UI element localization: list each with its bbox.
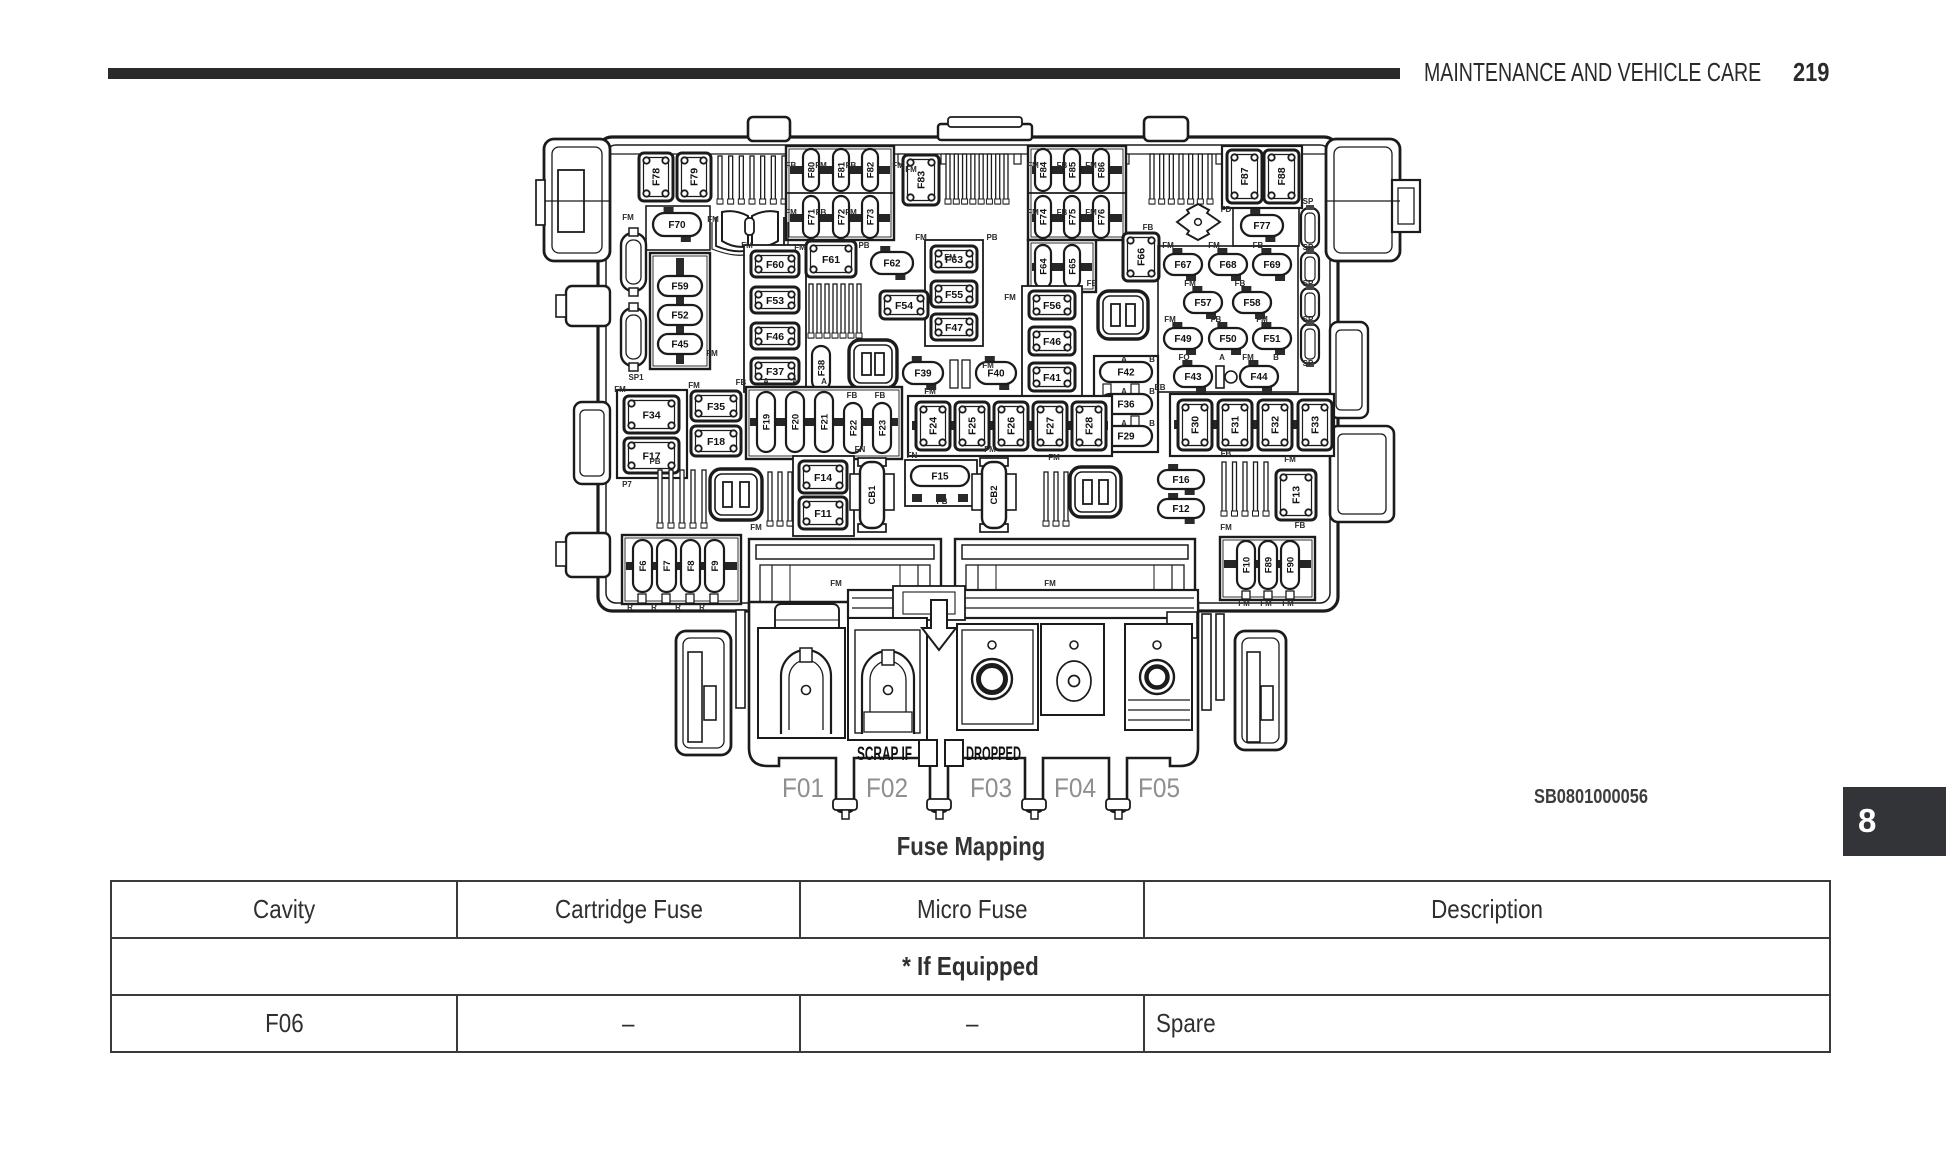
svg-text:F11: F11: [814, 508, 832, 520]
svg-text:F27: F27: [1045, 417, 1057, 435]
svg-text:F55: F55: [945, 289, 963, 301]
svg-text:F51: F51: [1263, 334, 1281, 345]
svg-text:F6: F6: [638, 560, 649, 571]
svg-text:FM: FM: [1048, 453, 1060, 462]
svg-text:F16: F16: [1172, 475, 1190, 486]
svg-text:FB: FB: [846, 161, 857, 170]
svg-text:F87: F87: [1239, 167, 1251, 185]
svg-text:R: R: [699, 603, 705, 612]
svg-text:F26: F26: [1006, 417, 1018, 435]
svg-text:F50: F50: [1219, 334, 1237, 345]
svg-text:PB: PB: [858, 241, 869, 250]
svg-text:F30: F30: [1190, 416, 1202, 434]
svg-text:FB: FB: [1221, 449, 1232, 458]
svg-text:F82: F82: [865, 162, 876, 178]
svg-text:FB: FB: [816, 208, 827, 217]
svg-text:R: R: [627, 603, 633, 612]
svg-text:F60: F60: [766, 259, 784, 271]
svg-text:F54: F54: [895, 300, 913, 312]
svg-text:FM: FM: [1044, 579, 1056, 588]
svg-text:F29: F29: [1117, 432, 1135, 443]
svg-text:FB: FB: [1295, 521, 1306, 530]
svg-text:FB: FB: [736, 378, 747, 387]
svg-text:FM: FM: [1004, 293, 1016, 302]
svg-text:FM: FM: [915, 233, 927, 242]
svg-text:F7: F7: [662, 560, 673, 571]
svg-text:FN: FN: [907, 451, 918, 460]
svg-text:F49: F49: [1174, 334, 1192, 345]
svg-text:F86: F86: [1096, 162, 1107, 178]
svg-text:FM: FM: [1085, 208, 1097, 217]
svg-text:FB: FB: [1057, 161, 1068, 170]
svg-text:F75: F75: [1067, 208, 1078, 225]
svg-text:F83: F83: [916, 171, 928, 189]
svg-text:FM: FM: [1027, 208, 1039, 217]
svg-text:F61: F61: [822, 254, 840, 266]
svg-text:FM: FM: [1220, 523, 1232, 532]
svg-text:F56: F56: [1043, 300, 1061, 312]
svg-text:F64: F64: [1038, 258, 1049, 275]
svg-text:F13: F13: [1291, 486, 1303, 504]
svg-text:F70: F70: [668, 220, 686, 231]
svg-text:F59: F59: [671, 282, 689, 293]
svg-text:F22: F22: [848, 420, 859, 436]
svg-text:FM: FM: [905, 165, 917, 174]
svg-text:FB: FB: [1057, 208, 1068, 217]
svg-text:F39: F39: [914, 369, 932, 380]
svg-text:FM: FM: [794, 243, 806, 252]
svg-text:F65: F65: [1067, 258, 1078, 275]
svg-text:FM: FM: [1284, 455, 1296, 464]
svg-text:F03: F03: [970, 773, 1012, 803]
svg-text:FB: FB: [1211, 315, 1222, 324]
svg-text:SP: SP: [1303, 315, 1314, 324]
svg-text:FN: FN: [855, 445, 866, 454]
svg-text:FM: FM: [750, 523, 762, 532]
svg-text:F31: F31: [1230, 416, 1242, 434]
svg-text:PB: PB: [936, 497, 947, 506]
svg-text:CB2: CB2: [989, 485, 1000, 504]
svg-text:F45: F45: [671, 340, 689, 351]
svg-text:FB: FB: [875, 391, 886, 400]
svg-text:FM: FM: [785, 208, 797, 217]
svg-text:F58: F58: [1243, 298, 1261, 309]
svg-text:F66: F66: [1136, 248, 1148, 266]
svg-text:F25: F25: [967, 417, 979, 435]
svg-text:FM: FM: [1242, 353, 1254, 362]
svg-text:SP: SP: [1303, 243, 1314, 252]
svg-text:FB: FB: [1143, 223, 1154, 232]
svg-text:F23: F23: [877, 420, 888, 436]
svg-text:R: R: [651, 603, 657, 612]
svg-text:F15: F15: [931, 472, 949, 483]
svg-text:F78: F78: [651, 168, 663, 186]
svg-text:F34: F34: [642, 409, 660, 421]
svg-text:F37: F37: [766, 366, 784, 378]
svg-text:FB: FB: [1235, 279, 1246, 288]
svg-text:F76: F76: [1096, 209, 1107, 225]
svg-text:F05: F05: [1138, 773, 1180, 803]
svg-text:FM: FM: [1282, 599, 1294, 608]
svg-text:F20: F20: [790, 414, 801, 430]
svg-text:FM: FM: [982, 361, 994, 370]
svg-text:FM: FM: [815, 161, 827, 170]
svg-text:B: B: [1149, 355, 1155, 364]
svg-text:FM: FM: [892, 161, 904, 170]
svg-text:F85: F85: [1067, 161, 1078, 178]
svg-text:F67: F67: [1174, 260, 1192, 271]
svg-text:FM: FM: [741, 241, 753, 250]
svg-text:FM: FM: [614, 385, 626, 394]
svg-text:F02: F02: [866, 773, 908, 803]
svg-text:A: A: [792, 377, 798, 386]
svg-text:F84: F84: [1038, 161, 1049, 178]
svg-text:B: B: [1149, 419, 1155, 428]
svg-text:B: B: [1149, 387, 1155, 396]
svg-text:F40: F40: [987, 369, 1005, 380]
svg-text:F90: F90: [1285, 557, 1296, 573]
svg-text:F04: F04: [1054, 773, 1096, 803]
svg-text:A: A: [1121, 355, 1127, 364]
svg-text:FM: FM: [706, 349, 718, 358]
svg-text:F73: F73: [865, 209, 876, 225]
svg-text:FM: FM: [707, 215, 719, 224]
svg-text:F57: F57: [1194, 298, 1212, 309]
svg-text:FM: FM: [1238, 599, 1250, 608]
svg-text:FM: FM: [1162, 241, 1174, 250]
svg-text:FB: FB: [1253, 241, 1264, 250]
svg-text:F14: F14: [814, 472, 832, 484]
svg-text:FQ: FQ: [1178, 353, 1189, 362]
svg-text:F36: F36: [1117, 400, 1135, 411]
svg-text:F01: F01: [782, 773, 824, 803]
svg-text:A: A: [821, 377, 827, 386]
svg-text:DROPPED: DROPPED: [966, 744, 1021, 765]
svg-text:B: B: [1273, 353, 1279, 362]
svg-text:F46: F46: [1043, 336, 1061, 348]
svg-text:F52: F52: [671, 311, 689, 322]
svg-text:F53: F53: [766, 295, 784, 307]
svg-text:FM: FM: [1164, 315, 1176, 324]
svg-text:FM: FM: [1027, 161, 1039, 170]
svg-text:SP1: SP1: [628, 373, 644, 382]
svg-text:FM: FM: [830, 579, 842, 588]
svg-text:F19: F19: [761, 414, 772, 430]
svg-text:FM: FM: [1184, 279, 1196, 288]
svg-text:F68: F68: [1219, 260, 1237, 271]
svg-text:F62: F62: [883, 259, 901, 270]
svg-text:FB: FB: [1087, 279, 1098, 288]
svg-text:FD: FD: [1221, 205, 1232, 214]
svg-text:A: A: [1121, 387, 1127, 396]
svg-text:FM: FM: [688, 381, 700, 390]
svg-text:SP: SP: [1303, 197, 1314, 206]
svg-text:FB: FB: [847, 391, 858, 400]
svg-text:F28: F28: [1084, 417, 1096, 435]
svg-text:F69: F69: [1263, 260, 1281, 271]
svg-text:A: A: [1121, 419, 1127, 428]
svg-text:F24: F24: [928, 417, 940, 435]
svg-text:F9: F9: [710, 560, 721, 571]
svg-text:F32: F32: [1270, 416, 1282, 434]
svg-text:PB: PB: [986, 233, 997, 242]
svg-text:P7: P7: [622, 480, 632, 489]
svg-text:FM: FM: [1208, 241, 1220, 250]
svg-text:F18: F18: [707, 436, 725, 448]
svg-text:FM: FM: [944, 253, 956, 262]
svg-text:EB: EB: [1154, 383, 1165, 392]
svg-text:F89: F89: [1263, 557, 1274, 573]
svg-text:F21: F21: [819, 413, 830, 430]
svg-text:FM: FM: [1085, 161, 1097, 170]
svg-text:FB: FB: [786, 161, 797, 170]
svg-text:FM: FM: [845, 208, 857, 217]
svg-text:SCRAP IF: SCRAP IF: [857, 744, 912, 765]
svg-text:FM: FM: [1256, 315, 1268, 324]
svg-text:F41: F41: [1043, 372, 1061, 384]
svg-text:F74: F74: [1038, 208, 1049, 225]
svg-text:F33: F33: [1310, 416, 1322, 434]
svg-text:PB: PB: [649, 457, 660, 466]
svg-text:SP: SP: [1303, 279, 1314, 288]
svg-text:F79: F79: [689, 168, 701, 186]
svg-text:F12: F12: [1172, 504, 1190, 515]
svg-text:SP: SP: [1303, 359, 1314, 368]
svg-text:A: A: [763, 377, 769, 386]
svg-text:CB1: CB1: [867, 485, 878, 505]
svg-text:R: R: [675, 603, 681, 612]
svg-text:F42: F42: [1117, 368, 1135, 379]
svg-text:F44: F44: [1250, 372, 1268, 383]
svg-text:FM: FM: [924, 387, 936, 396]
svg-text:F46: F46: [766, 331, 784, 343]
svg-text:F38: F38: [816, 360, 827, 376]
svg-text:F77: F77: [1253, 221, 1271, 232]
svg-text:F47: F47: [945, 322, 963, 334]
svg-text:F8: F8: [686, 560, 697, 571]
svg-text:A: A: [1219, 353, 1225, 362]
svg-text:F35: F35: [707, 401, 725, 413]
svg-text:F43: F43: [1184, 372, 1202, 383]
svg-text:FM: FM: [1260, 599, 1272, 608]
svg-text:F10: F10: [1241, 557, 1252, 573]
svg-text:FM: FM: [622, 213, 634, 222]
svg-text:FM: FM: [984, 445, 996, 454]
svg-text:F88: F88: [1276, 167, 1288, 185]
